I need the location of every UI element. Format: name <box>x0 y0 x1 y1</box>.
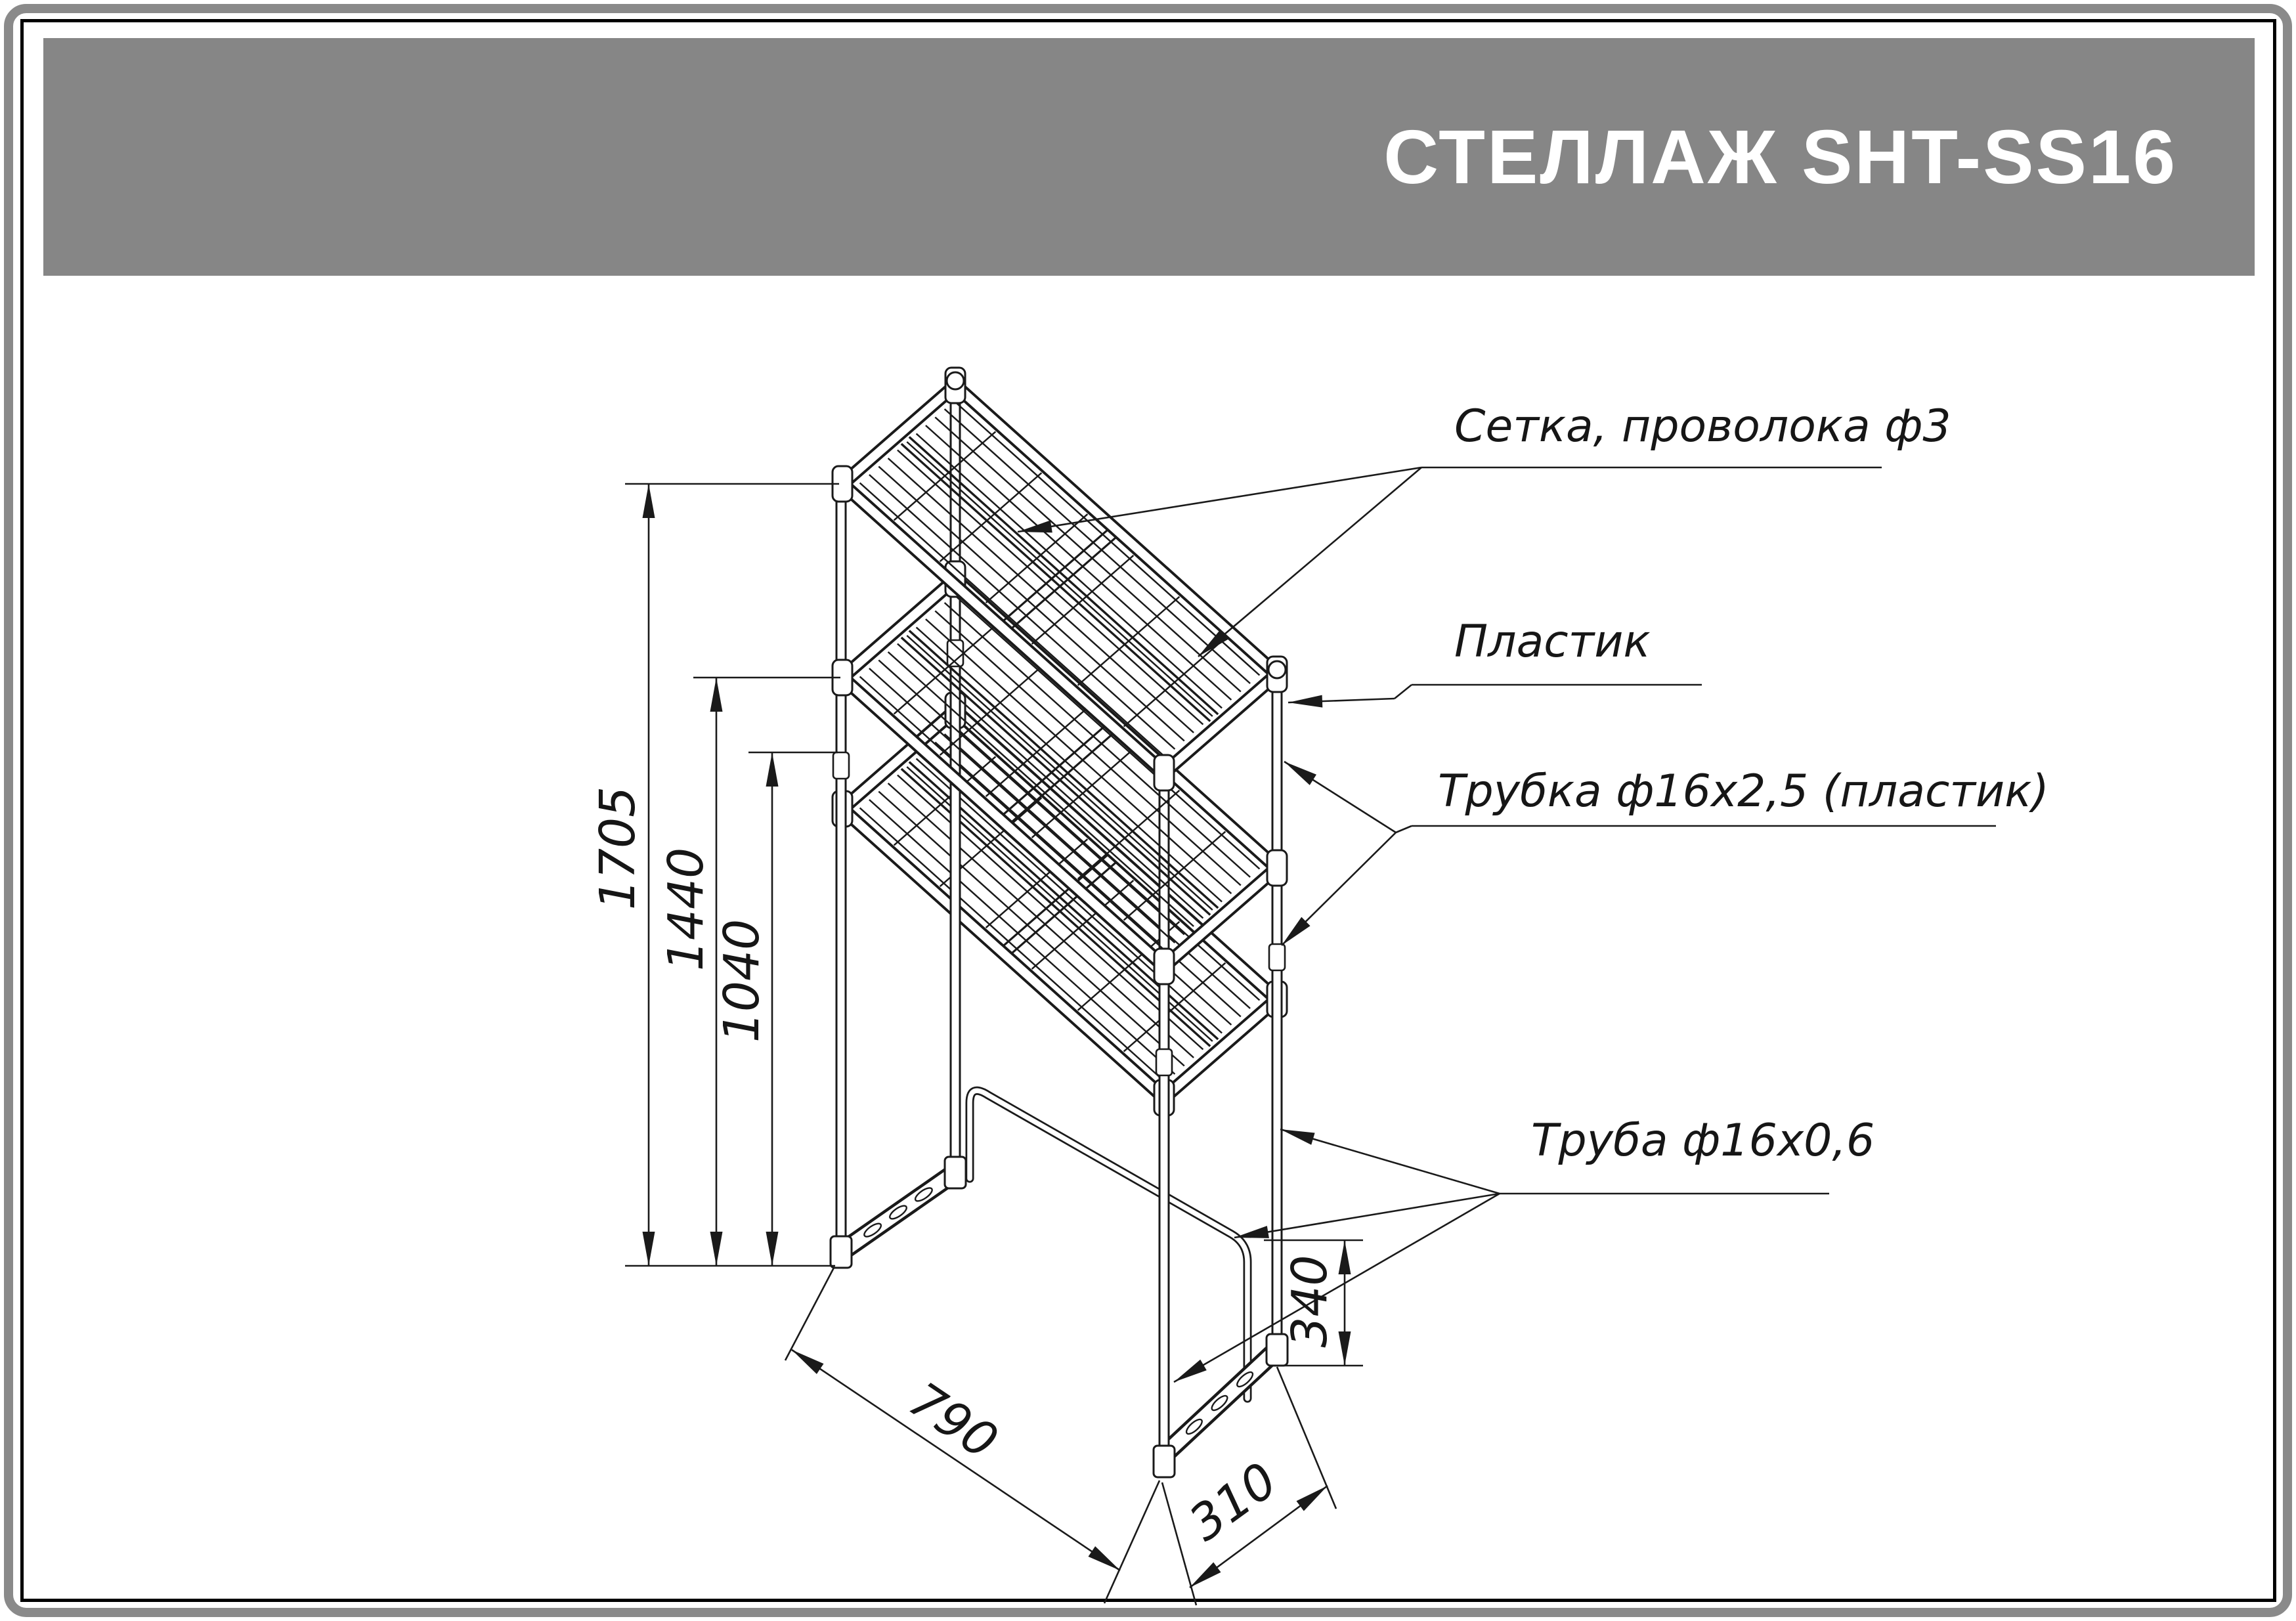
isometric-drawing: 1705 1440 1040 340 790 310 Сетка, провол… <box>0 0 2296 1621</box>
label-plastic: Пластик <box>1454 616 1651 668</box>
stabilizer-tube <box>970 1091 1247 1398</box>
label-mesh: Сетка, проволока ф3 <box>1454 400 1951 452</box>
dim-height-total: 1705 <box>590 787 646 910</box>
dim-height-clearance: 1040 <box>714 919 770 1043</box>
dim-depth: 310 <box>1179 1452 1288 1552</box>
label-tube-steel: Труба ф16х0,6 <box>1531 1115 1874 1167</box>
label-tube-plastic: Трубка ф16х2,5 (пластик) <box>1438 766 2049 817</box>
drawing-sheet: СТЕЛЛАЖ SHT-SS16 1705 1440 1040 340 790 … <box>0 0 2296 1621</box>
dim-height-middle: 1440 <box>658 848 714 971</box>
dim-base-height: 340 <box>1282 1255 1338 1347</box>
dim-width: 790 <box>899 1372 1007 1470</box>
